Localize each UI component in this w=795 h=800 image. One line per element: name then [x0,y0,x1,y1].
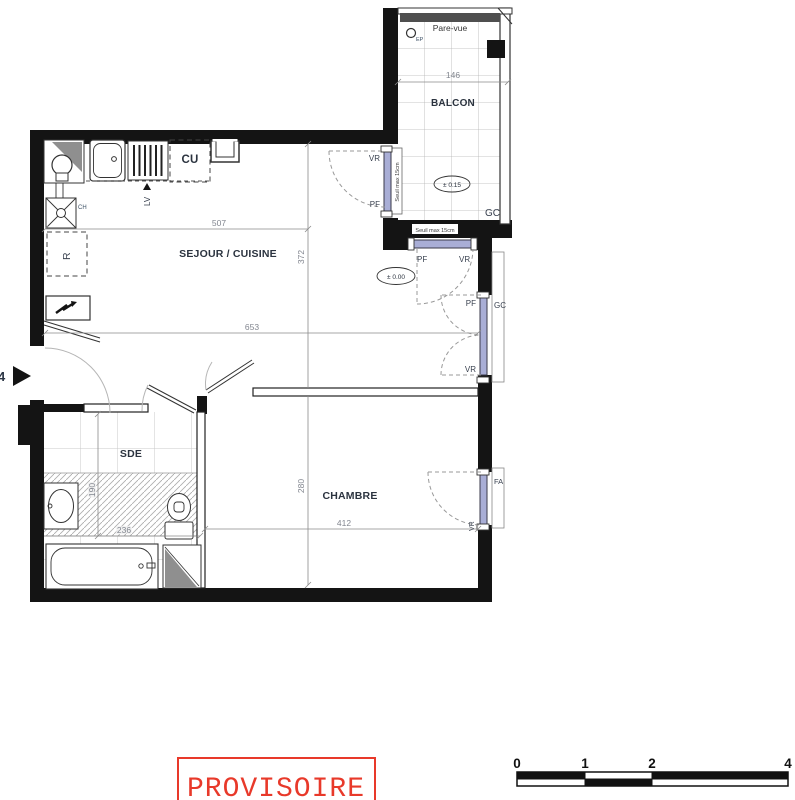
entrance-door-leaf1 [44,321,100,338]
dim-236: 236 [117,525,131,535]
bedroom-window-arc [428,472,481,525]
dishwasher-arrow-icon [143,183,151,190]
balcony-door-pf-label: PF [370,200,380,209]
scale-tick-0: 0 [513,756,521,771]
bedroom-door-swing-arc [206,362,212,390]
boiler-label: CH [78,205,87,211]
bathroom-label: SDE [120,448,142,460]
rainwater-pipe-icon [407,29,416,38]
bedroom-window [428,468,504,530]
top-window-vr-label: VR [459,255,470,264]
balcony-label: BALCON [431,98,475,109]
scale-tick-1: 1 [581,756,589,771]
threshold-label-horizontal: Seuil max 15cm [415,228,455,234]
floor-plan-page: SEJOUR / CUISINE CHAMBRE SDE BALCON 507 … [0,0,795,800]
right-window-vr-label: VR [465,365,476,374]
bedroom-door-leaf2 [208,363,254,393]
rainwater-pipe-label: EP [416,37,424,43]
vent-duct-inner [216,141,234,157]
right-window-pf-label: PF [466,299,476,308]
toilet-bowl [168,494,191,521]
living-right-window [441,252,504,383]
dim-372: 372 [296,250,306,264]
kitchen-cu-label: CU [181,154,198,166]
water-heater-icon [52,155,72,175]
scale-bar: 0 1 2 4 [513,756,792,786]
balcony-door-glazing [384,151,391,211]
dim-190: 190 [87,483,97,497]
balcony-door [329,144,402,218]
scale-seg-e [585,779,652,786]
floor-plan-canvas: SEJOUR / CUISINE CHAMBRE SDE BALCON 507 … [0,0,795,800]
partition-sde-top [84,404,148,412]
bedroom-door-leaf1 [206,360,252,390]
bathroom-door-leaf2 [147,388,194,413]
wall-sde-top-solid [44,404,84,412]
entrance-door-swing-arc [45,348,110,413]
balcony-gc-label: GC [485,208,500,219]
level-balcony-text: ± 0.15 [443,182,461,189]
living-room-label: SEJOUR / CUISINE [179,248,277,260]
wall-right-1 [478,250,492,295]
scale-seg-a [517,772,585,779]
wall-door-post [197,396,207,414]
bedroom-window-glazing [480,472,487,525]
dim-280: 280 [296,479,306,493]
entrance-number: 4 [0,369,6,384]
right-window-cap-bottom [477,377,489,383]
wall-left-upper [30,130,44,346]
scale-seg-d [517,779,585,786]
bathroom-door-leaf1 [149,385,196,410]
right-window-glazing [480,295,487,375]
level-living-text: ± 0.00 [387,274,405,281]
partition-bedroom-top [253,388,478,396]
boiler-valve-icon [57,209,66,218]
balcony-door-vr-label: VR [369,154,380,163]
toilet-tank [165,522,193,539]
balcony-door-cap-bottom [381,211,392,217]
bathroom-door [142,385,196,413]
dishwasher-label: LV [143,196,152,206]
provisional-stamp: PROVISOIRE [178,758,375,800]
top-window-glazing [413,240,473,248]
scale-seg-f [652,779,788,786]
pare-vue-screen [400,13,500,22]
pare-vue-label: Pare-vue [433,23,468,33]
entrance-door-leaf2 [44,325,100,342]
balcony-post [487,40,505,58]
threshold-label-vertical: Seuil max 15cm [395,162,401,202]
scale-seg-b [585,772,652,779]
bedroom-door [206,360,254,393]
entrance-door [13,321,110,413]
bedroom-window-vr-label: VR [469,521,476,531]
entrance-arrow-icon [13,366,31,386]
scale-tick-2: 2 [648,756,656,771]
dim-653: 653 [245,322,259,332]
bedroom-window-fa-label: FA [494,477,503,486]
top-window-cap-right [471,238,477,250]
top-window-cap-left [408,238,414,250]
wall-right-2 [478,375,492,472]
right-window-ledge [492,252,504,382]
kitchen-fixtures [44,139,239,320]
wall-left-stub [18,405,32,445]
right-window-gc-label: GC [494,301,506,310]
scale-seg-c [652,772,788,779]
balcony-door-cap-top [381,146,392,152]
wall-bottom [30,588,492,602]
wall-balcony-left-upper [383,8,398,150]
stamp-text: PROVISOIRE [187,774,365,800]
dim-146: 146 [446,70,460,80]
wall-left-lower [30,400,44,602]
bathtub [46,544,158,589]
bedroom-label: CHAMBRE [322,490,377,502]
dim-412: 412 [337,518,351,528]
scale-tick-4: 4 [784,756,792,771]
top-window-pf-label: PF [417,255,427,264]
vent-duct-opening [213,139,238,142]
fridge-label: R [61,252,73,260]
dim-507: 507 [212,218,226,228]
water-heater-base [56,173,68,181]
